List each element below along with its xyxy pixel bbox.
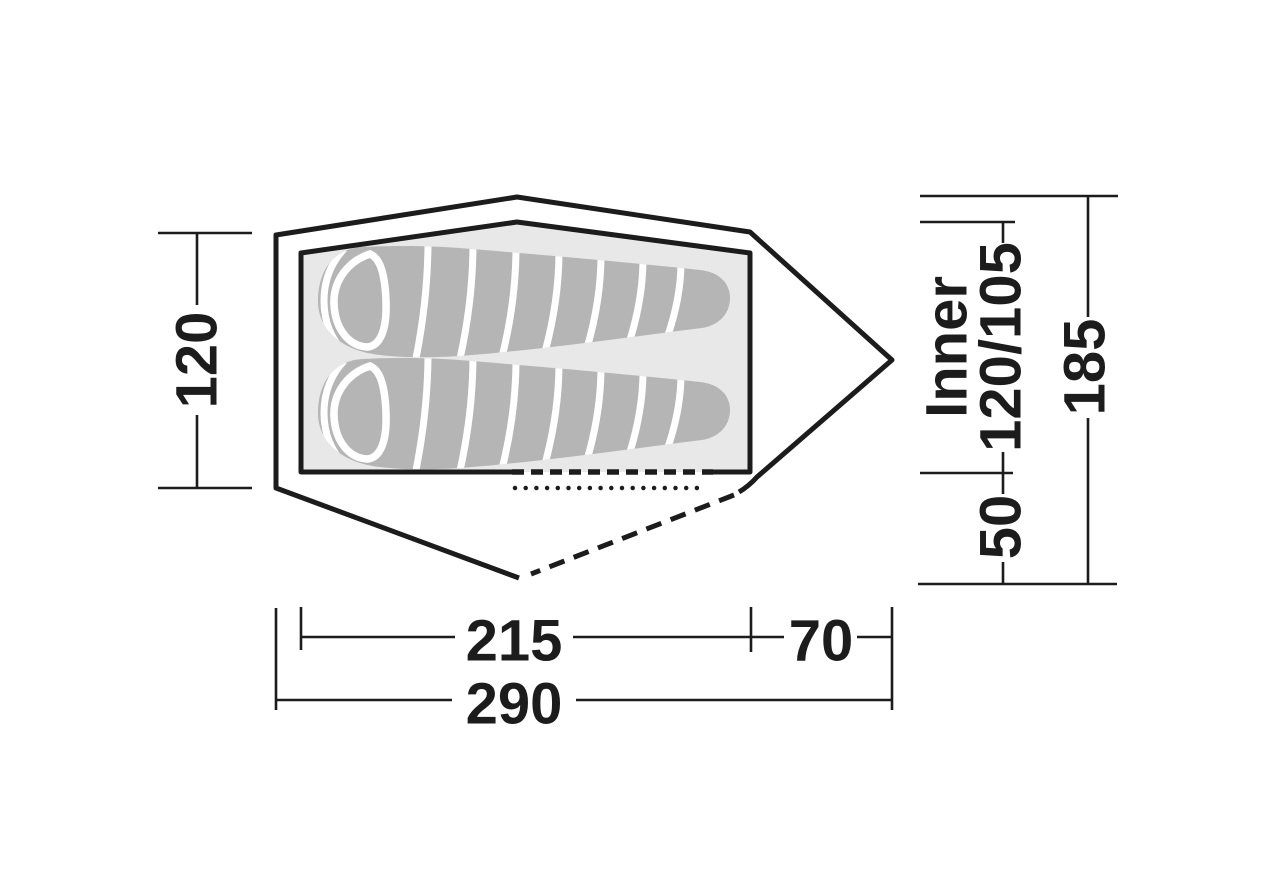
- dim-right: Inner 120/105 50 185: [915, 196, 1119, 584]
- diagram-svg: 120 215 70 290 Inner 120/105 50 185: [0, 0, 1280, 888]
- dim-label-50: 50: [969, 495, 1034, 560]
- tent-floorplan-diagram: 120 215 70 290 Inner 120/105 50 185: [0, 0, 1280, 888]
- dim-label-185: 185: [1053, 319, 1118, 416]
- dim-label-120: 120: [165, 312, 230, 409]
- dim-label-215: 215: [466, 609, 563, 674]
- dim-label-70: 70: [789, 609, 854, 674]
- dim-label-120-105: 120/105: [969, 242, 1034, 452]
- dim-bottom: 215 70 290: [276, 607, 892, 737]
- dim-left-width: 120: [158, 233, 252, 488]
- dim-label-290: 290: [466, 672, 563, 737]
